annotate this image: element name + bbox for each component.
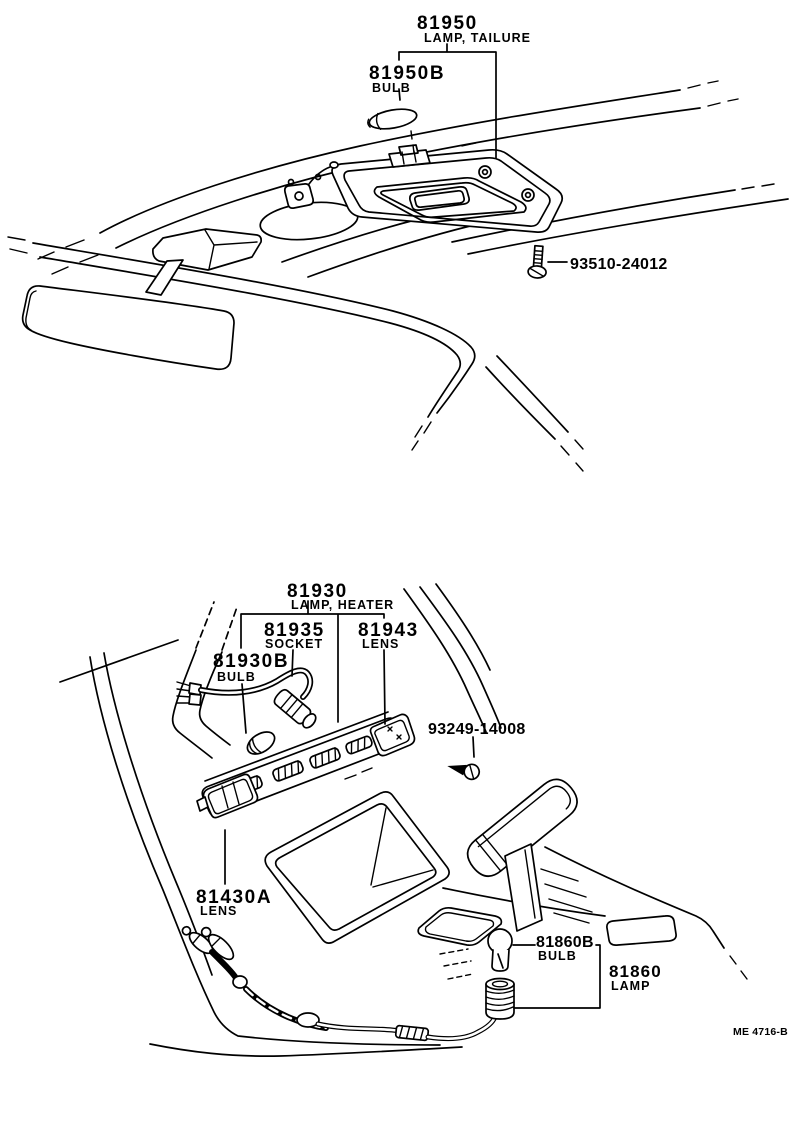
part-name-bulb-heater: BULB: [217, 670, 256, 684]
part-name-lens-console: LENS: [200, 904, 237, 918]
part-name-bulb-console: BULB: [538, 949, 577, 963]
shift-knob-drawing: [461, 773, 592, 931]
part-number-81930b: 81930B: [213, 651, 289, 672]
lamp-clip: [389, 145, 430, 167]
part-name-lamp-heater: LAMP, HEATER: [291, 598, 394, 612]
part-name-socket: SOCKET: [265, 637, 323, 651]
lamp-wiring-greebles: [285, 162, 338, 208]
roof-lamp-illustration: 81950 LAMP, TAILURE 81950B BULB 93510-24…: [8, 13, 788, 471]
console-lamp-housing-drawing: [486, 979, 514, 1020]
part-name-lamp-tailure: LAMP, TAILURE: [424, 31, 531, 45]
part-number-93249-14008: 93249-14008: [428, 721, 526, 738]
console-illustration: 81930 LAMP, HEATER 81935 SOCKET 81943 LE…: [60, 581, 747, 1056]
roof-panel-lines: [8, 81, 788, 471]
part-name-lens-heater: LENS: [362, 637, 399, 651]
part-name-bulb-top: BULB: [372, 81, 411, 95]
drawing-code: ME 4716-B: [733, 1026, 788, 1038]
map-lamp-assembly: [285, 145, 562, 232]
part-number-93510-24012: 93510-24012: [570, 256, 668, 273]
part-name-lamp-console: LAMP: [611, 979, 650, 993]
console-screw-drawing: [446, 737, 482, 781]
rearview-mirror-drawing: [23, 286, 234, 369]
roof-screw-drawing: [528, 245, 567, 278]
console-bulb-drawing: [488, 929, 512, 971]
heater-bulb-drawing: [244, 727, 279, 758]
catalog-page: 81950 LAMP, TAILURE 81950B BULB 93510-24…: [0, 0, 792, 1126]
mirror-stalk: [146, 260, 183, 295]
heater-lens-panel: [371, 714, 415, 755]
parts-diagram-canvas: 81950 LAMP, TAILURE 81950B BULB 93510-24…: [0, 0, 792, 1126]
console-opening: [265, 792, 449, 943]
